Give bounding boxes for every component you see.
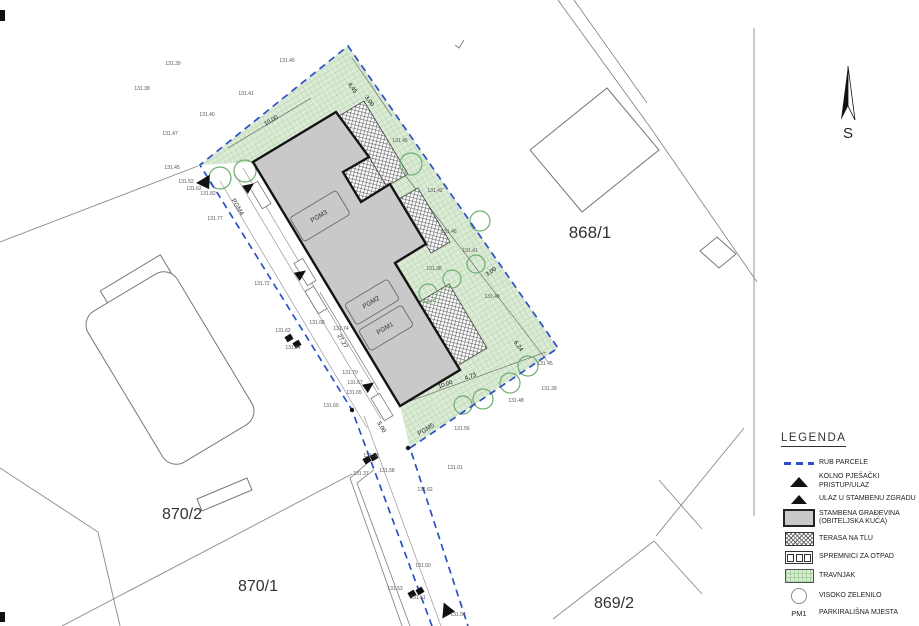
parcel-number: 869/2 <box>594 595 634 612</box>
elevation-label: 131.50 <box>415 563 431 569</box>
elevation-label: 131.62 <box>417 487 433 493</box>
lawn-swatch <box>785 569 814 583</box>
building-outline-870-wing <box>197 478 252 511</box>
scan-artifact <box>0 612 5 622</box>
parcel-number: 870/1 <box>238 578 278 595</box>
parcel-line <box>0 166 198 242</box>
elevation-label: 131.41 <box>462 248 478 254</box>
elevation-label: 131.54 <box>450 612 466 618</box>
legend-item-stambena-gradevina: STAMBENA GRAĐEVINA (OBITELJSKA KUĆA) <box>781 509 919 527</box>
elevation-label: 131.53 <box>387 586 403 592</box>
elevation-label: 131.38 <box>134 86 150 92</box>
elevation-label: 131.52 <box>178 179 194 185</box>
elevation-label: 131.38 <box>426 266 442 272</box>
elevation-label: 131.62 <box>275 328 291 334</box>
elevation-label: 131.60 <box>323 403 339 409</box>
elevation-label: 131.77 <box>207 216 223 222</box>
elevation-label: 131.67 <box>347 380 363 386</box>
elevation-label: 131.45 <box>537 361 553 367</box>
legend-item-parkiralisna-mjesta: PM1 PARKIRALIŠNA MJESTA <box>781 609 919 618</box>
elevation-label: 131.56 <box>454 426 470 432</box>
legend-item-terasa-na-tlu: TERASA NA TLU <box>781 532 919 546</box>
legend-item-kolno-pjesacki-pristup: KOLNO PJEŠAČKI PRISTUP/ULAZ <box>781 473 919 491</box>
legend-item-visoko-zelenilo: VISOKO ZELENILO <box>781 588 919 604</box>
elevation-label: 131.53 <box>363 453 379 459</box>
elevation-label: 131.42 <box>427 188 443 194</box>
north-arrow-icon <box>841 66 848 120</box>
north-arrow-icon <box>848 66 855 120</box>
elevation-label: 131.39 <box>165 61 181 67</box>
road-edge-line <box>574 0 647 103</box>
elevation-label: 131.45 <box>392 138 408 144</box>
parcel-line-left <box>0 468 120 626</box>
elevation-label: 131.48 <box>441 229 457 235</box>
elevation-label: 131.51 <box>410 595 426 601</box>
waste-bin-icon <box>787 554 794 562</box>
scan-artifact <box>0 10 5 21</box>
entrance-triangle-icon <box>791 495 807 504</box>
parcel-line-869 <box>656 428 744 536</box>
elevation-label: 131.45 <box>164 165 180 171</box>
legend-item-rub-parcele: RUB PARCELE <box>781 459 919 468</box>
elevation-label: 131.64 <box>285 345 301 351</box>
parcel-number: 870/2 <box>162 506 202 523</box>
elevation-label: 131.39 <box>541 386 557 392</box>
elevation-label: 131.45 <box>279 58 295 64</box>
elevation-label: 131.48 <box>484 294 500 300</box>
building-swatch <box>783 509 815 527</box>
elevation-label: 131.48 <box>508 398 524 404</box>
elevation-label: 131.72 <box>254 281 270 287</box>
legend-title: LEGENDA <box>781 432 846 447</box>
terrace-swatch <box>785 532 814 546</box>
access-triangle-icon <box>790 477 808 487</box>
elevation-label: 131.65 <box>346 390 362 396</box>
north-label: S <box>843 125 853 142</box>
waste-bin-icon <box>796 554 803 562</box>
north-arrow: S <box>830 58 870 148</box>
legend-item-ulaz-u-stambenu-zgradu: ULAZ U STAMBENU ZGRADU <box>781 495 919 504</box>
tree-icon <box>470 211 490 231</box>
elevation-label: 131.70 <box>342 370 358 376</box>
waste-bin-icon <box>804 554 811 562</box>
building-outline-868 <box>530 88 659 212</box>
parcel-number: 868/1 <box>569 223 612 242</box>
legend: LEGENDA RUB PARCELE KOLNO PJEŠAČKI PRIST… <box>781 428 919 623</box>
elevation-label: 131.74 <box>333 326 349 332</box>
pm1-label: PM1 <box>791 609 806 618</box>
legend-item-travnjak: TRAVNJAK <box>781 569 919 583</box>
legend-item-spremnici-za-otpad: SPREMNICI ZA OTPAD <box>781 551 919 564</box>
building-outline-small <box>700 237 736 268</box>
survey-point <box>350 408 354 412</box>
dashed-boundary-swatch <box>784 462 814 465</box>
survey-point <box>406 446 410 450</box>
elevation-label: 131.47 <box>162 131 178 137</box>
tree-circle-icon <box>791 588 807 604</box>
elevation-label: 131.40 <box>199 112 215 118</box>
waste-container-icon <box>284 334 293 343</box>
site-plan-page: 131.39131.45131.38131.41131.40131.47131.… <box>0 0 919 626</box>
elevation-label: 131.41 <box>238 91 254 97</box>
survey-check-mark <box>455 40 464 48</box>
elevation-label: 131.82 <box>200 191 216 197</box>
elevation-label: 131.01 <box>447 465 463 471</box>
waste-bins-icon <box>785 551 813 564</box>
elevation-label: 131.58 <box>379 468 395 474</box>
elevation-label: 131.37 <box>353 471 369 477</box>
elevation-label: 131.68 <box>309 320 325 326</box>
